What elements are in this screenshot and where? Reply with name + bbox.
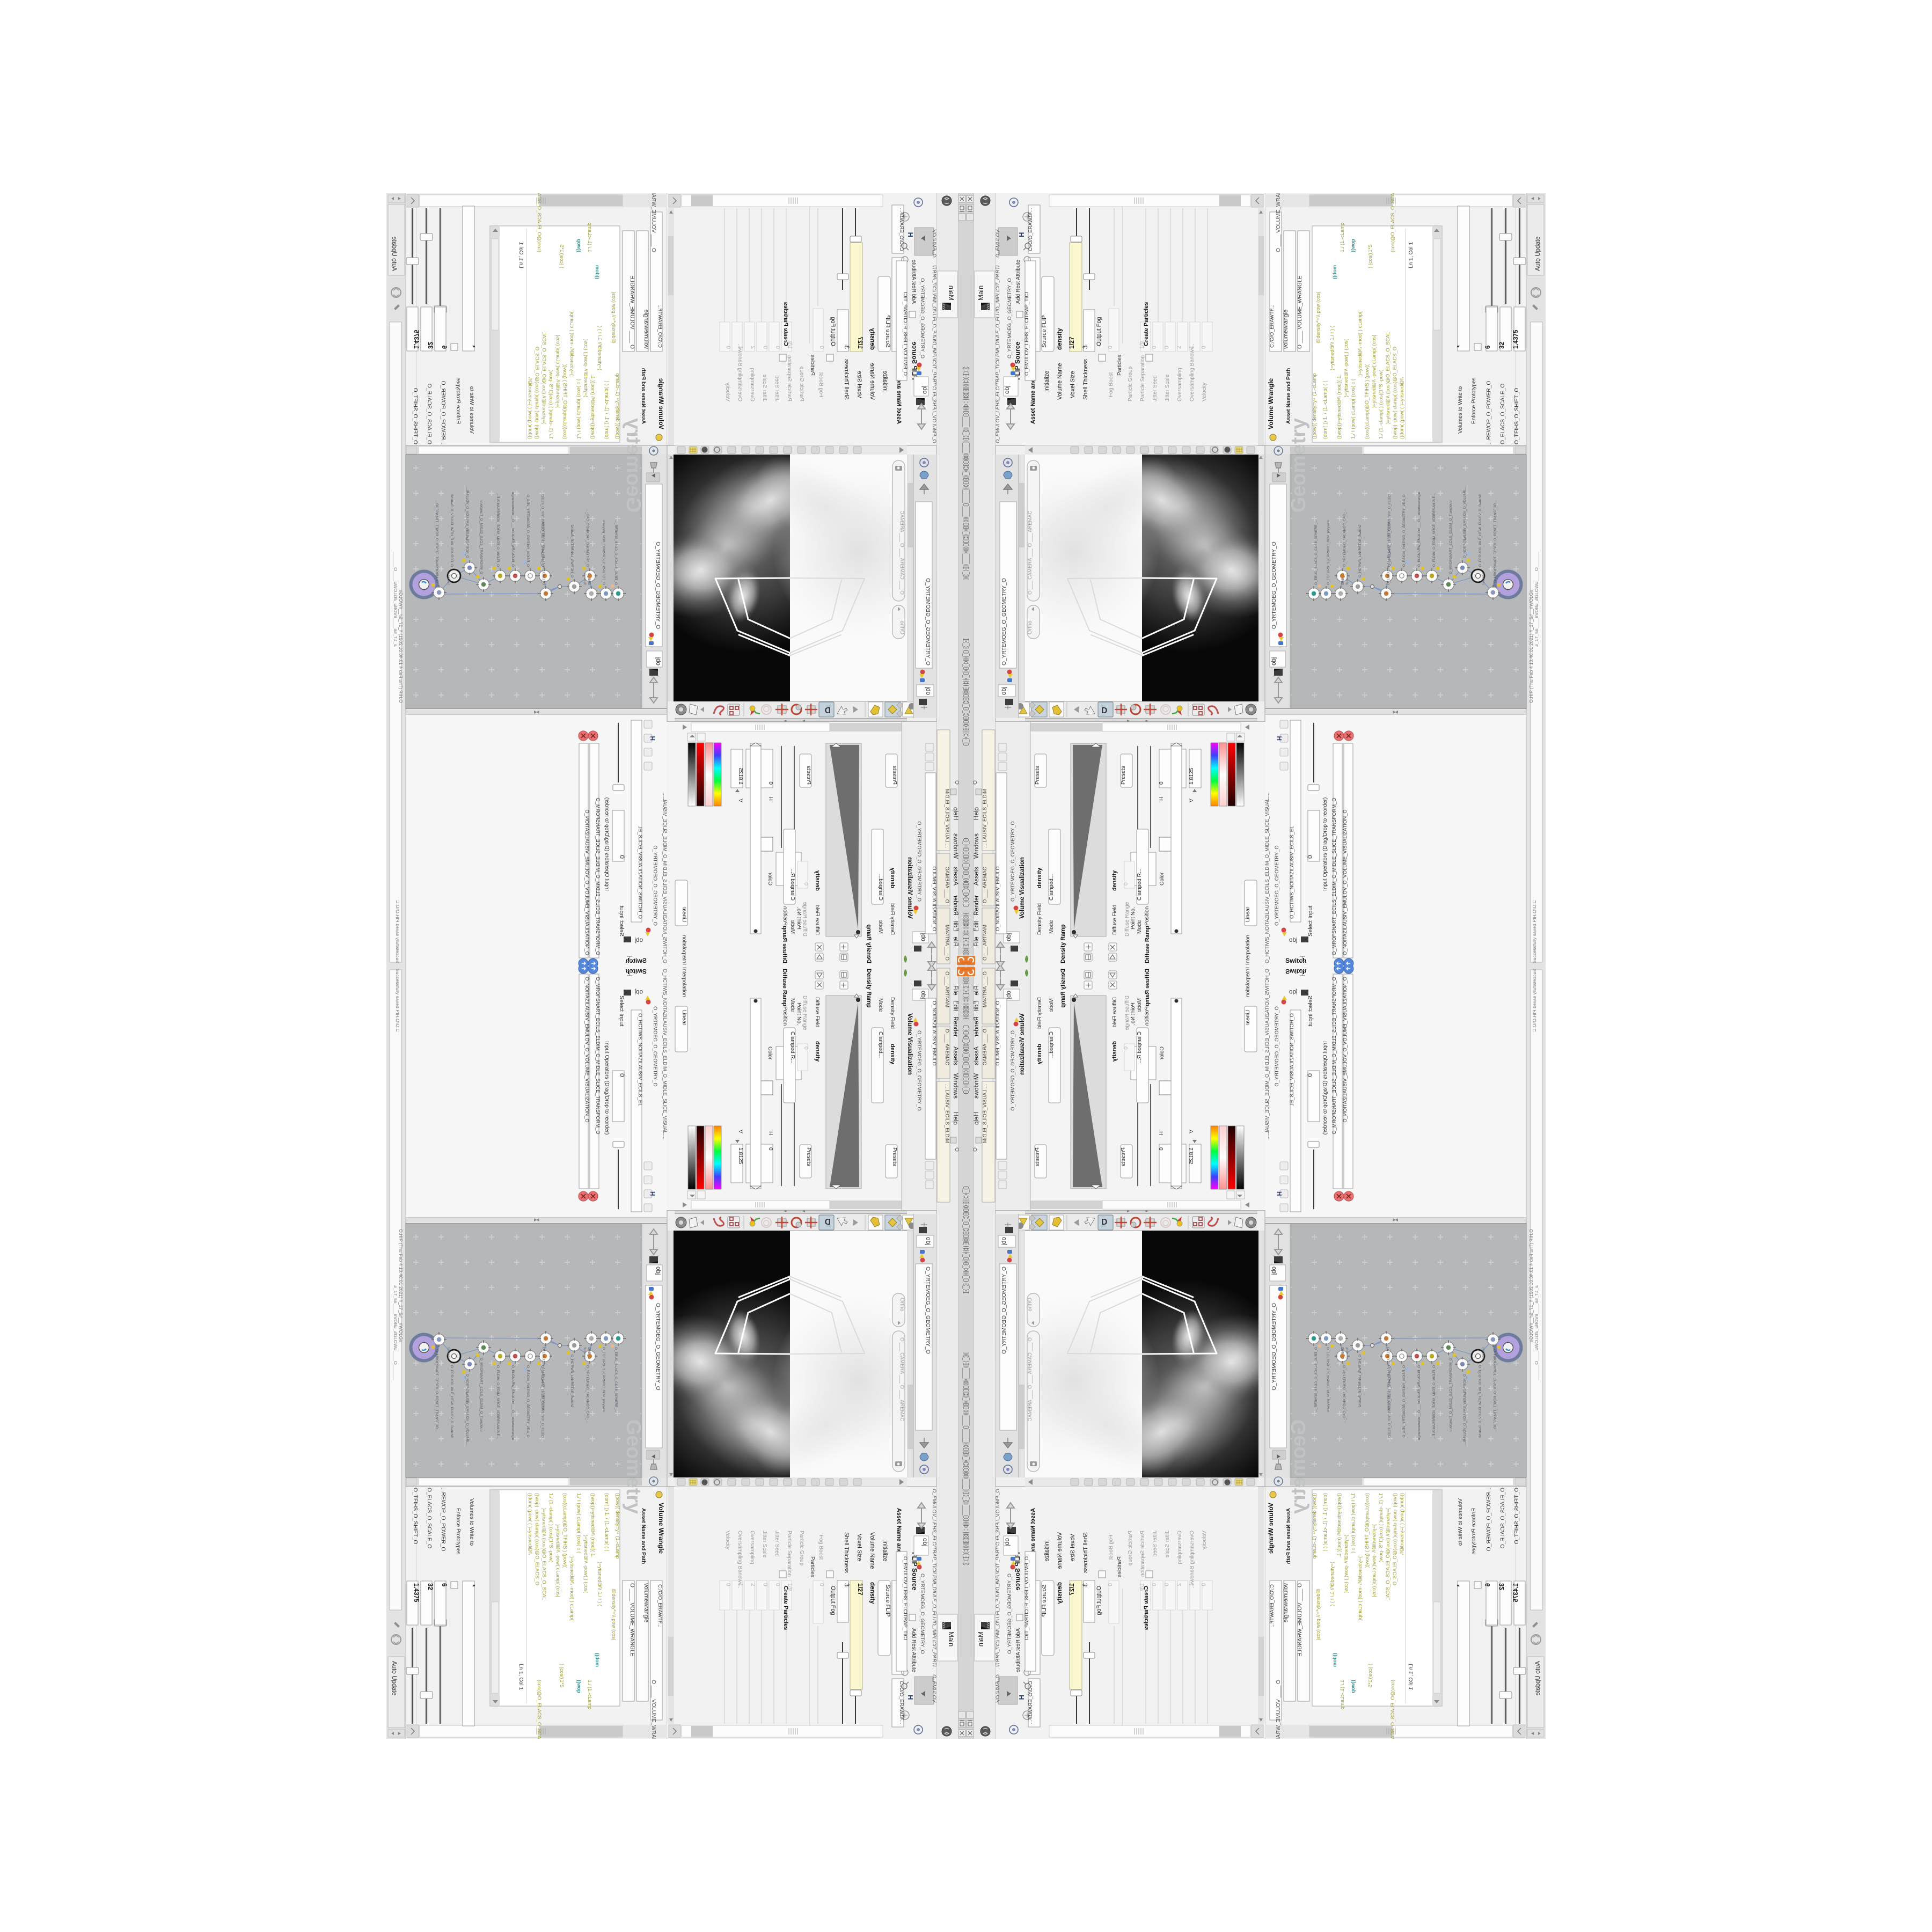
svg-text:density: density [814,870,821,891]
svg-text:O_EMULOV_LEHS_ELCIT_FLIP Sourc: O_EMULOV_LEHS_ELCIT_FLIP Source [541,521,545,585]
svg-text:O_NOITAZILAUSIV_EMULOV_O_VOLUM: O_NOITAZILAUSIV_EMULOV_O_VOLUME_VISUALIZ… [584,809,590,955]
svg-text:obj: obj [921,386,928,394]
svg-text:(cos(@O_ELACS_O_SCAL: (cos(@O_ELACS_O_SCAL [537,190,543,252]
svg-text:Volume Wrangle: Volume Wrangle [657,378,665,429]
svg-text:Density Field: Density Field [889,903,895,935]
svg-text:1.4375: 1.4375 [413,330,420,349]
svg-text:obj: obj [925,687,932,695]
svg-text:O_EMULOV: O_EMULOV [932,229,938,258]
svg-text:O_ELACS_O_SCALE_O: O_ELACS_O_SCALE_O [426,384,432,444]
svg-text:O_YRTEMOEG_O_GEOMETRY_O: O_YRTEMOEG_O_GEOMETRY_O [653,845,658,926]
svg-text:Density Ramp: Density Ramp [866,924,872,963]
svg-text:H: H [767,797,773,801]
svg-text:Ln 1, Col 1: Ln 1, Col 1 [518,241,524,268]
svg-text:Windows: Windows [952,833,959,859]
svg-text:O_ELGNARW_EMULOV___O__volumewr: O_ELGNARW_EMULOV___O__volumewrangle [511,492,515,567]
svg-text:)=ytisned@\\ -pow( ) (cos(: )=ytisned@\\ -pow( ) (cos( [583,339,589,397]
svg-text:O_EREHPS_SSERPMOC_BDV_polywire: O_EREHPS_SSERPMOC_BDV_polywire [602,520,605,585]
svg-text:Switch: Switch [625,957,647,964]
svg-text:O_YRTEMOEG_O_GEOMETRY_O: O_YRTEMOEG_O_GEOMETRY_O [917,821,923,902]
svg-text:32: 32 [427,342,434,349]
svg-text:Initialize: Initialize [882,371,888,392]
svg-text:Diffuse Ramp: Diffuse Ramp [781,925,788,963]
svg-text:Presets: Presets [891,766,897,785]
svg-text:)=ytisned@\\ (cos(@O_ELACS_O_: )=ytisned@\\ (cos(@O_ELACS_O_SCAL [541,332,547,424]
svg-text:)=ytisned@\\ -pow( cLamp( (: )=ytisned@\\ -pow( cLamp( (cos( [555,334,561,408]
svg-text:Successfully saved PIH.O\O:C: Successfully saved PIH.O\O:C [395,900,400,963]
svg-text:Jitter Scale: Jitter Scale [762,374,767,401]
svg-text:#_17_5#____#VDB#_#GLOW#____O__: #_17_5#____#VDB#_#GLOW#____O______ [393,552,398,647]
svg-text:File: File [952,936,959,947]
svg-text:1/27: 1/27 [857,336,863,349]
svg-text:Add Rest Attribute: Add Rest Attribute [911,260,917,304]
svg-text:Voxel Size: Voxel Size [856,371,862,398]
svg-text:Mode: Mode [877,920,883,934]
svg-text:O_NOITAZILAUSIV_EMULO: O_NOITAZILAUSIV_EMULO [932,866,938,931]
svg-text:Particle Separation: Particle Separation [786,355,792,401]
svg-text:Assets: Assets [952,867,959,885]
svg-text:V: V [737,799,743,802]
svg-text:H: H [906,232,914,237]
svg-text:0: 0 [818,346,824,349]
svg-text:0: 0 [767,781,773,785]
svg-text:obj: obj [655,657,662,665]
svg-text:Volume Visualization: Volume Visualization [906,857,913,919]
svg-text:O_YRTEMOEG_TREVNOC_CAB_...: O_YRTEMOEG_TREVNOC_CAB_... [586,509,589,567]
svg-text:0: 0 [803,882,809,885]
svg-text:O ___ CAMERA ___ O ___ AREMAC: O ___ CAMERA ___ O ___ AREMAC [899,510,905,595]
svg-text:Enforce Prototypes: Enforce Prototypes [455,377,461,424]
svg-text:Output Fog: Output Fog [830,317,836,347]
svg-text:Presets: Presets [806,766,811,785]
svg-text:Linear: Linear [681,906,687,922]
svg-text:Volume Name: Volume Name [869,363,875,400]
svg-text:Clamped...: Clamped... [877,874,883,901]
svg-text:Fog Boost: Fog Boost [818,372,824,397]
svg-text:((dom: ((dom [595,265,601,279]
svg-text:density: density [889,868,896,888]
svg-text:Auto Update: Auto Update [391,237,398,271]
svg-text:O_YRTEMOEG_O_GEOMETRY_O: O_YRTEMOEG_O_GEOMETRY_O [655,541,661,629]
svg-text:Particles: Particles [809,355,815,376]
svg-text:Oversampling: Oversampling [749,368,755,401]
svg-text:0: 0 [774,346,780,349]
svg-text:((dom( (pow( ( )=ytisned@\\: ((dom( (pow( ( )=ytisned@\\ [528,377,533,439]
svg-text:6: 6 [441,345,448,349]
svg-text:((wop: ((wop [576,239,582,252]
svg-text:O_YRTEMOEG_O_GEOMETRY_O: O_YRTEMOEG_O_GEOMETRY_O [925,578,931,665]
svg-text:O_EMULOV_LEHS_ELCITRAP_TICILPM: O_EMULOV_LEHS_ELCITRAP_TICILPMI_DIULF_O_… [932,260,938,443]
svg-text:H: H [649,736,656,741]
svg-text:O_YRTEMOEG_O_GEOMETRY_O: O_YRTEMOEG_O_GEOMETRY_O [920,278,926,358]
svg-text:Shell Thickness: Shell Thickness [843,358,850,400]
svg-text:C:/O/O_ERAWTF...: C:/O/O_ERAWTF... [657,305,663,348]
svg-text:1./ t (pow( cLamp( (cos( c: 1./ t (pow( cLamp( (cos( c ( [576,378,582,439]
svg-text:Position: Position [782,906,788,926]
svg-text:Oversampling Bandwi...: Oversampling Bandwi... [737,343,743,401]
svg-text:GAB_O: GAB_O [587,573,591,585]
svg-text:1./ (1.-cLamp: 1./ (1.-cLamp [587,223,593,252]
svg-text:Diffuse Field: Diffuse Field [814,904,820,935]
svg-text:Point No.: Point No. [796,907,802,930]
svg-text:O_ELDIM_O_EDIM_SLICE_VDBRESAMP: O_ELDIM_O_EDIM_SLICE_VDBRESAMPLE... [496,493,500,567]
svg-text:obj: obj [635,936,643,943]
svg-text:Ortho: Ortho [899,620,905,634]
svg-text:O_MROFSNART_ECILS_ELDIM_O_MIDL: O_MROFSNART_ECILS_ELDIM_O_MIDLE_SLICE_TR… [595,797,601,955]
svg-text:(dom( )) 1. / (1.-cLamp( ( (: (dom( )) 1. / (1.-cLamp( ( ( [604,380,610,439]
svg-text:*: * [469,345,477,348]
svg-text:Source FLIP: Source FLIP [884,315,891,348]
svg-text:Velocity: Velocity [724,382,730,401]
svg-text:O_NOITAZILAUSIV_EMULOV_O_VOLUM: O_NOITAZILAUSIV_EMULOV_O_VOLUME... [465,487,469,558]
svg-text:((wop))=ytisned@\\ (mod(( 1.: ((wop))=ytisned@\\ (mod(( 1. [590,375,596,439]
svg-text:) (cos((1*S: ) (cos((1*S [559,244,565,268]
svg-text:O: O [954,780,960,785]
svg-text:O ___ ARTNAM: O ___ ARTNAM [945,925,950,961]
svg-text:Help: Help [952,807,959,820]
svg-text:volumewrangle: volumewrangle [643,310,649,349]
svg-text:Diffuse Range: Diffuse Range [802,902,808,936]
svg-text:)=ytisned@\\ 1./ t ) (: )=ytisned@\\ 1./ t ) ( [597,325,603,370]
svg-text:O_MROFSNART_ECILS_ELDIM_O_Tran: O_MROFSNART_ECILS_ELDIM_O_Transform [479,501,483,574]
svg-text:Create Particles: Create Particles [782,302,789,346]
svg-text:Clamped R...: Clamped R... [789,869,795,901]
svg-text:D: D [825,706,831,715]
svg-text:Asset Name and Path: Asset Name and Path [640,368,646,424]
svg-text:O_EBUC_ELACS_O_CUBE_SPHERE_...: O_EBUC_ELACS_O_CUBE_SPHERE_... [614,519,618,585]
svg-text:1./ (1.-clamp( ) (cos((1*S: 1./ (1.-clamp( ) (cos((1*S -pow( [548,369,554,439]
svg-text:Color: Color [767,872,773,885]
svg-text:)=ytisned@\\ -mod( ) cLamp(: )=ytisned@\\ -mod( ) cLamp( [569,311,575,376]
svg-text:O.HIP (Thu Feb 4 10:46:01 202: O.HIP (Thu Feb 4 10:46:01 2021) #_17_5#_… [398,589,404,703]
svg-text:Jitter Seed: Jitter Seed [774,375,780,401]
svg-text:O_EMULOV_LEHS_ELCITRAP_TICI: O_EMULOV_LEHS_ELCITRAP_TICI [903,292,909,376]
svg-text:Particle Group: Particle Group [799,367,804,401]
svg-text:Edit: Edit [952,920,959,932]
svg-text:3: 3 [843,346,850,349]
svg-text:flipbook: flipbook [583,573,587,585]
svg-text:0: 0 [618,855,625,859]
svg-text:((wop) -pow( clamp( (cos(@O: ((wop) -pow( clamp( (cos(@O_ELACS_O [535,347,540,439]
svg-text:Volumes to Write to: Volumes to Write to [469,386,474,434]
svg-text:....LAUSIV_ECILS_ELDIM: ....LAUSIV_ECILS_ELDIM [945,789,950,848]
svg-text:O_ESION_YALPSID_O_GEOMETRY_VDB: O_ESION_YALPSID_O_GEOMETRY_VDB_O [526,494,530,567]
svg-text:Switch2: Switch2 [447,573,450,585]
svg-text:Mode: Mode [789,920,795,934]
svg-text:Select Input: Select Input [618,905,625,936]
svg-text:(cos((cLamp(@O_TFIHS ) (pow(: (cos((cLamp(@O_TFIHS ) (pow(( [562,364,568,439]
svg-text:1.8125: 1.8125 [737,768,743,785]
svg-text:((pow(( density=y+ (1.-cLamp: ((pow(( density=y+ (1.-cLamp [615,374,621,439]
svg-text:O_MROFSNART_TESER_O_RESET_TRAN: O_MROFSNART_TESER_O_RESET_TRANSFOR... [435,500,438,583]
svg-text:O_ECRUOS_PILF_HTIW_EULOV_O_Swi: O_ECRUOS_PILF_HTIW_EULOV_O_Switch2 [450,494,453,567]
svg-text:O_HCTIWS_NOITAZILAUSIV_ECILS_E: O_HCTIWS_NOITAZILAUSIV_ECILS_EL [638,826,643,919]
svg-text:...REWOP_O_POWER_O: ...REWOP_O_POWER_O [440,381,446,444]
svg-text:Interpolation: Interpolation [681,935,687,965]
svg-text:0: 0 [762,346,768,349]
svg-text:O ____ VOLUME_WRANGLE: O ____ VOLUME_WRANGLE [629,275,635,349]
svg-text:O ___ AREMAC: O ___ AREMAC [945,867,950,903]
svg-text:O_TFIHS_O_SHIFT_O: O_TFIHS_O_SHIFT_O [412,388,418,444]
svg-text:Main: Main [947,286,955,301]
svg-text:@density*=\\ pow (cos(: @density*=\\ pow (cos( [611,291,617,343]
svg-text:Input Operators (Drag/Drop to: Input Operators (Drag/Drop to reorder) [604,797,610,891]
svg-text:Render: Render [952,895,959,916]
svg-text:density: density [869,328,876,350]
svg-text:0: 0 [725,346,731,349]
svg-text:O ____ VOLUME_WRANGL...: O ____ VOLUME_WRANGL... [650,178,656,252]
svg-text:2: 2 [750,346,756,349]
svg-text:obj: obj [920,933,927,941]
svg-text:O_HCTIWS_LANRETXE_Switch2: O_HCTIWS_LANRETXE_Switch2 [570,524,574,577]
